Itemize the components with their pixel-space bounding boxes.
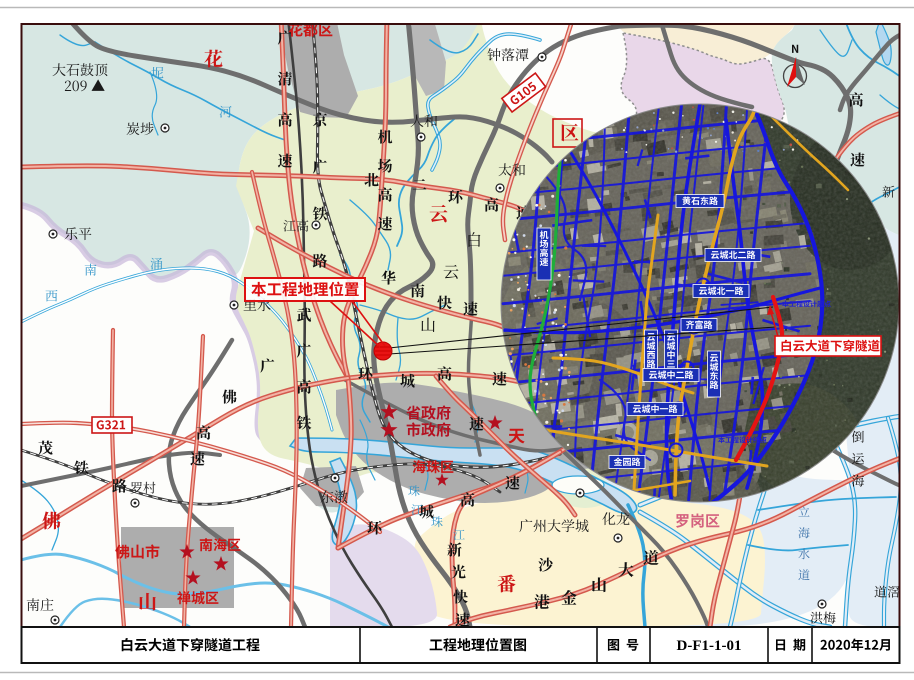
svg-text:D-F1-1-01: D-F1-1-01	[677, 638, 742, 654]
